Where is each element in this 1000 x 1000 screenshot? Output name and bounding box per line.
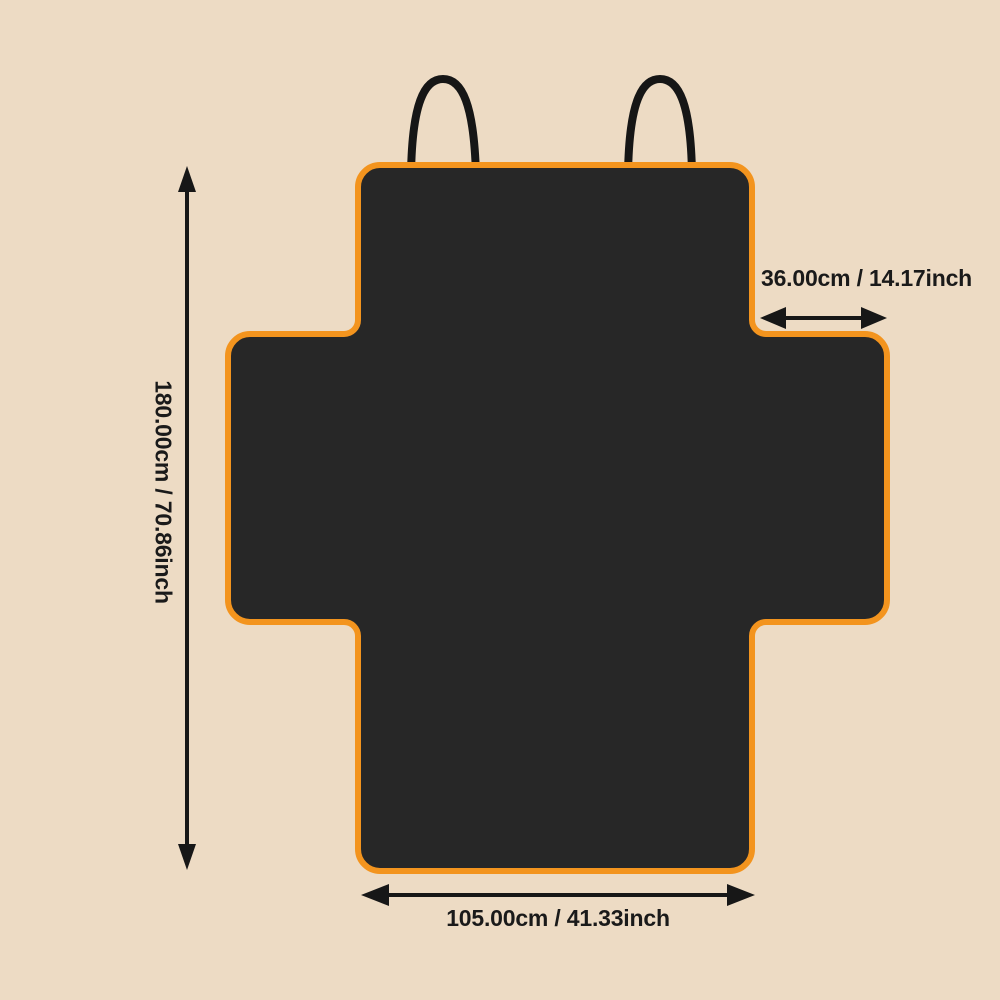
diagram-canvas: 180.00cm / 70.86inch 36.00cm / 14.17inch…	[0, 0, 1000, 1000]
strap-loop-left-icon	[411, 79, 476, 175]
height-dimension-arrow	[178, 166, 196, 870]
flap-width-dimension-label: 36.00cm / 14.17inch	[761, 266, 972, 291]
strap-loop-right-icon	[628, 79, 692, 175]
flap-width-dimension-arrow	[760, 307, 887, 329]
height-dimension-label: 180.00cm / 70.86inch	[150, 380, 175, 604]
bottom-width-dimension-arrow	[361, 884, 755, 906]
bottom-width-dimension-label: 105.00cm / 41.33inch	[446, 906, 670, 931]
